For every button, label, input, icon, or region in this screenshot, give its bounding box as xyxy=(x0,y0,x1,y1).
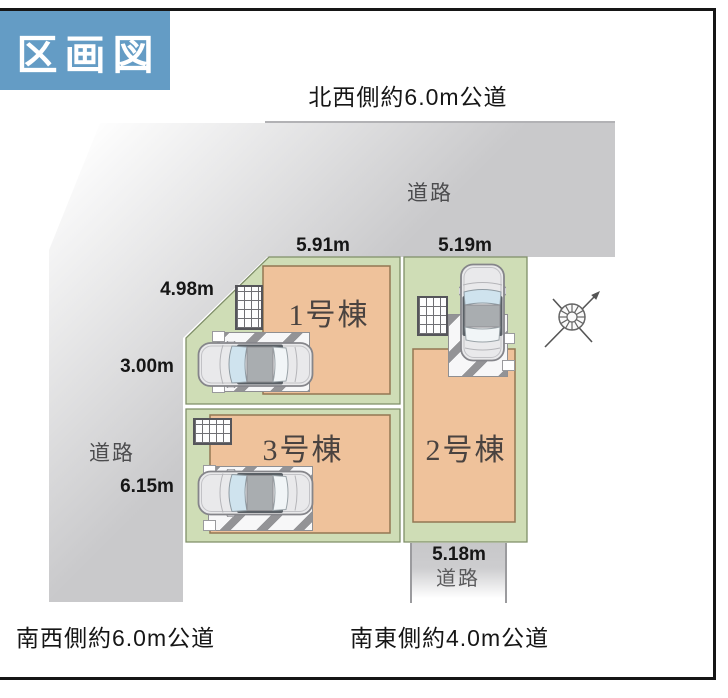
building-1-label: 1号棟 xyxy=(268,290,390,334)
measurement-lot1-top: 5.91m xyxy=(287,235,359,257)
measurement-lot2-top: 5.19m xyxy=(429,235,501,257)
plot-map-canvas: 区画図 北西側約6.0m公道 南西側約6.0m公道 南東側約4.0m公道 道路 … xyxy=(0,0,728,698)
building-3-label: 3号棟 xyxy=(212,425,394,469)
road-label-left: 道路 xyxy=(81,437,143,467)
southwest-road-label: 南西側約6.0m公道 xyxy=(16,619,266,653)
measurement-lot1-left: 3.00m xyxy=(111,356,183,378)
road-label-top: 道路 xyxy=(399,177,461,207)
page-title: 区画図 xyxy=(10,21,161,81)
building-2-label: 2号棟 xyxy=(412,425,520,469)
road-label-bottom: 道路 xyxy=(430,562,486,591)
title-badge: 区画図 xyxy=(0,11,170,90)
measurement-lot3-left: 6.15m xyxy=(111,476,183,498)
northwest-road-label: 北西側約6.0m公道 xyxy=(263,78,553,112)
measurement-lot1-diagonal: 4.98m xyxy=(151,279,223,301)
southeast-road-label: 南東側約4.0m公道 xyxy=(350,619,600,653)
measurement-lot2-bottom: 5.18m xyxy=(423,544,495,566)
